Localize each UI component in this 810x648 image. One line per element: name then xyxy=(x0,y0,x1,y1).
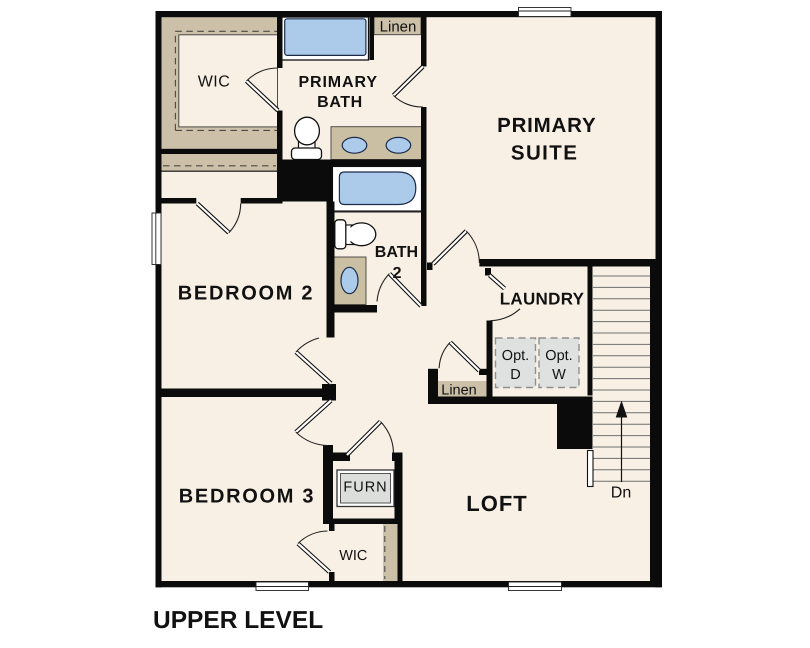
svg-text:W: W xyxy=(552,367,566,383)
svg-text:2: 2 xyxy=(393,265,402,282)
svg-text:WIC: WIC xyxy=(339,548,367,564)
svg-text:WIC: WIC xyxy=(198,74,231,91)
svg-text:BEDROOM 2: BEDROOM 2 xyxy=(178,283,314,305)
svg-text:UPPER LEVEL: UPPER LEVEL xyxy=(153,607,323,634)
svg-text:LAUNDRY: LAUNDRY xyxy=(500,289,585,308)
svg-text:Dn: Dn xyxy=(611,485,631,502)
svg-text:FURN: FURN xyxy=(343,480,387,496)
svg-text:Linen: Linen xyxy=(441,383,476,399)
svg-text:BATH: BATH xyxy=(317,94,363,111)
svg-text:D: D xyxy=(510,367,520,383)
svg-text:PRIMARY: PRIMARY xyxy=(298,74,378,91)
svg-text:Opt.: Opt. xyxy=(502,348,529,364)
svg-text:LOFT: LOFT xyxy=(466,491,527,516)
svg-text:BEDROOM 3: BEDROOM 3 xyxy=(179,486,315,508)
svg-text:PRIMARY: PRIMARY xyxy=(497,114,596,137)
svg-text:Linen: Linen xyxy=(380,18,417,35)
svg-text:SUITE: SUITE xyxy=(511,142,578,165)
svg-text:Opt.: Opt. xyxy=(545,348,572,364)
svg-text:BATH: BATH xyxy=(375,244,418,261)
